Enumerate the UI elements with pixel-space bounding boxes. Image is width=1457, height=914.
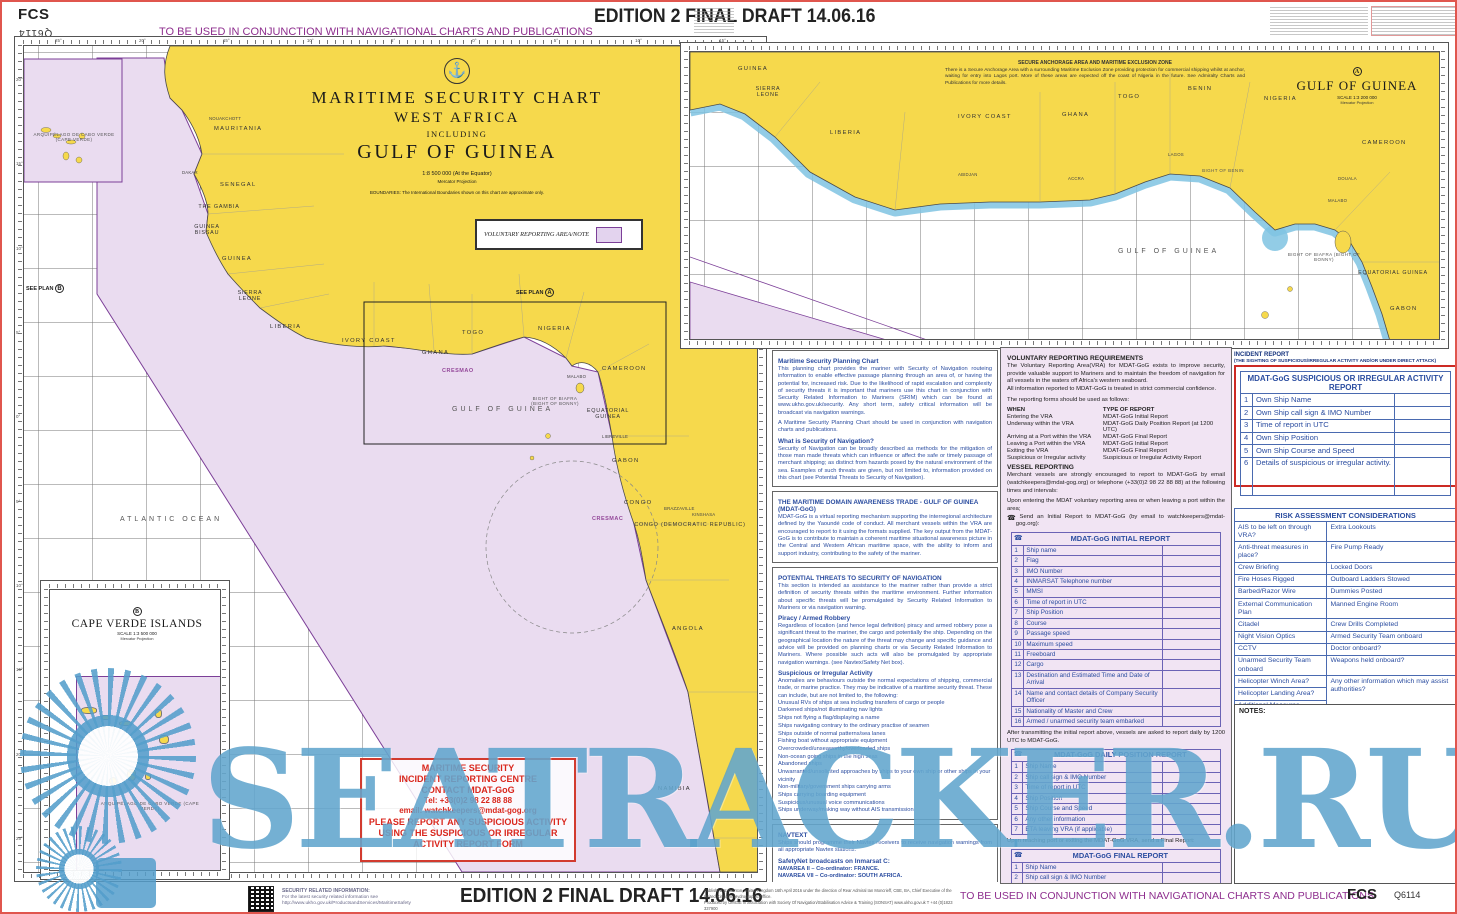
table-cell: Time of report in UTC (1024, 597, 1162, 607)
section-body: A Maritime Security Planning Chart shoul… (778, 420, 992, 435)
table-cell: Entering the VRA (1007, 413, 1103, 420)
section-title: Piracy / Armed Robbery (778, 615, 992, 622)
inset-label-guinea: GUINEA (738, 66, 768, 72)
risk-table: RISK ASSESSMENT CONSIDERATIONS AIS to be… (1234, 508, 1457, 713)
inset-a-badge: A (1353, 67, 1362, 76)
list-item: Unusual RVs of ships at sea including tr… (778, 700, 992, 708)
inset-label-benin: BENIN (1188, 86, 1212, 92)
island (81, 707, 97, 714)
table-row: Exiting the VRAMDAT-GoG Final Report (1007, 447, 1225, 454)
voluntary-reporting-panel: VOLUNTARY REPORTING REQUIREMENTS The Vol… (1000, 347, 1232, 884)
vra-swatch (596, 227, 622, 243)
table-cell: 7 (1012, 825, 1023, 835)
table-cell: Ship Course and Speed (1023, 804, 1162, 814)
map-label-nigeria: NIGERIA (538, 326, 571, 332)
table-cell: Exiting the VRA (1007, 447, 1103, 454)
table-row: 3IMO Number (1012, 566, 1220, 576)
chart-including: INCLUDING (307, 129, 607, 139)
map-label-guinea-bissau: GUINEA BISSAU (184, 224, 230, 236)
plan-a-badge: A (545, 288, 554, 297)
footer-usage-note: TO BE USED IN CONJUNCTION WITH NAVIGATIO… (960, 890, 1374, 902)
vrr-intro: The Voluntary Reporting Area(VRA) for MD… (1007, 363, 1225, 386)
table-row: External Communication PlanManned Engine… (1235, 599, 1457, 619)
table-cell: Night Vision Optics (1235, 631, 1327, 643)
incident-table: MDAT-GoG SUSPICIOUS OR IRREGULAR ACTIVIT… (1240, 371, 1451, 496)
map-label-ghana: GHANA (422, 350, 449, 356)
after-initial: After transmitting the initial report ab… (1007, 730, 1225, 745)
section-body: This section is intended as assistance t… (778, 583, 992, 612)
inset-a-map: A GULF OF GUINEA SCALE 1:3 200 000 Merca… (689, 51, 1440, 340)
table-cell: 1 (1012, 762, 1023, 772)
table-cell: Time of report in UTC (1253, 419, 1395, 432)
table-cell: Ship Position (1023, 793, 1162, 803)
table-cell: MDAT-GoG Initial Report (1103, 413, 1225, 420)
table-cell: 10 (1012, 639, 1024, 649)
chart-logo-fcs: FCS Q6114 (18, 7, 52, 38)
mdat-gog-section: THE MARITIME DOMAIN AWARENESS TRADE - GU… (772, 491, 998, 563)
inset-label-gulf-of-guinea: GULF OF GUINEA (1118, 248, 1219, 255)
risk-assessment-panel: RISK ASSESSMENT CONSIDERATIONS AIS to be… (1234, 508, 1457, 713)
value-cell-empty (1162, 804, 1220, 814)
inset-label-sierra-leone: SIERRA LEONE (746, 86, 790, 98)
value-cell-empty (1395, 419, 1451, 432)
list-item: Unwarranted/unsolicited approaches by sh… (778, 769, 992, 784)
list-item: 5° (16, 330, 23, 335)
map-label-angola: ANGOLA (672, 626, 704, 632)
notes-label: NOTES: (1239, 708, 1452, 715)
table-row: 7ETA leaving VRA (if applicable) (1012, 825, 1220, 835)
inset-label-ivory-coast: IVORY COAST (958, 114, 1012, 120)
section-title: THE MARITIME DOMAIN AWARENESS TRADE - GU… (778, 499, 992, 513)
contact-line1: MARITIME SECURITY (362, 763, 574, 774)
type-header: TYPE OF REPORT (1103, 406, 1225, 413)
table-cell: Course (1024, 618, 1162, 628)
value-cell-empty (1162, 660, 1220, 670)
list-item: 20° (16, 77, 23, 82)
map-label-gabon: GABON (612, 458, 639, 464)
notes-panel: NOTES: (1234, 704, 1457, 884)
list-item: 0° (16, 414, 23, 419)
when-header: WHEN (1007, 406, 1103, 413)
table-cell: 3 (1012, 883, 1023, 884)
list-item: Non-military/government ships carrying a… (778, 784, 992, 792)
legal-microtext (1270, 7, 1368, 35)
table-cell: Ship Position (1024, 608, 1162, 618)
inset-label-equatorial-guinea: EQUATORIAL GUINEA (1358, 270, 1428, 276)
table-cell: 2 (1012, 772, 1023, 782)
see-plan-a-text: SEE PLAN (516, 290, 544, 296)
table-cell: Anti-threat measures in place? (1235, 542, 1327, 562)
island (127, 769, 136, 781)
table-row: 2Ship call sign & IMO Number (1012, 772, 1220, 782)
incident-report-panel: INCIDENT REPORT (THE SIGHTING OF SUSPICI… (1234, 352, 1457, 502)
section-body: MDAT-GoG is a virtual reporting mechanis… (778, 514, 992, 558)
value-cell-empty (1162, 577, 1220, 587)
incident-contact-box: MARITIME SECURITY INCIDENT REPORTING CEN… (360, 758, 576, 862)
publication-line1: Published at Taunton, United Kingdom 16t… (704, 888, 956, 900)
table-cell: 1 (1012, 862, 1023, 872)
island (119, 721, 132, 726)
chart-page: FCS Q6114 TO BE USED IN CONJUNCTION WITH… (0, 0, 1457, 914)
value-cell-empty (1162, 597, 1220, 607)
table-cell: Own Ship Course and Speed (1253, 445, 1395, 458)
latitude-labels: 20°15°10°5°0°5°10°15°20°25° (16, 77, 23, 841)
section-title: Maritime Security Planning Chart (778, 358, 992, 365)
list-item: 10° (307, 38, 314, 45)
list-item: 10° (635, 38, 642, 45)
value-cell-empty (1162, 650, 1220, 660)
phone-icon: ☎ (1007, 514, 1016, 523)
table-cell: Crew Briefing (1235, 562, 1327, 574)
table-cell: AIS to be left on through VRA? (1235, 522, 1327, 542)
table-cell: 8 (1012, 618, 1024, 628)
table-cell: Passage speed (1024, 629, 1162, 639)
list-item: Ships outside of normal patterns/sea lan… (778, 731, 992, 739)
publication-line2: Produced by OMGIE in association with So… (704, 900, 956, 912)
island (159, 735, 169, 744)
table-cell: Flag (1024, 556, 1162, 566)
table-row: 6Time of report in UTC (1012, 597, 1220, 607)
list-item: Ships underway/making way without AIS tr… (778, 807, 992, 815)
risk-title: RISK ASSESSMENT CONSIDERATIONS (1235, 509, 1457, 522)
list-item: 25° (55, 38, 62, 45)
value-cell-empty (1162, 762, 1220, 772)
table-row: 4Ship Position (1012, 793, 1220, 803)
inset-label-liberia: LIBERIA (830, 130, 861, 136)
phone-icon: ☎ (1014, 751, 1023, 759)
header-edition-title: EDITION 2 FINAL DRAFT 14.06.16 (594, 6, 875, 28)
navarea-7: NAVAREA VII – Co-ordinator: SOUTH AFRICA… (778, 873, 992, 880)
table-cell: 2 (1012, 556, 1024, 566)
see-plan-b-note: SEE PLAN B (26, 284, 64, 293)
chart-projection: Mercator Projection (307, 179, 607, 184)
table-cell: Destination and Estimated Time and Date … (1024, 670, 1162, 688)
table-cell: 1 (1241, 394, 1253, 407)
inset-b-badge: B (133, 607, 142, 616)
table-row: 2Ship call sign & IMO Number (1012, 873, 1220, 883)
send-initial: ☎ Send an Initial Report to MDAT-GoG (by… (1007, 514, 1225, 529)
list-item: 5° (554, 38, 558, 45)
chart-scale: 1:8 500 000 (At the Equator) (307, 171, 607, 177)
initial-report-table: ☎MDAT-GoG INITIAL REPORT 1Ship name2Flag… (1011, 532, 1220, 727)
table-cell: Dummies Posted (1327, 586, 1457, 598)
table-row: 11Freeboard (1012, 650, 1220, 660)
incident-subtitle: (THE SIGHTING OF SUSPICIOUS/IRREGULAR AC… (1234, 358, 1457, 363)
table-row: Underway within the VRAMDAT-GoG Daily Po… (1007, 420, 1225, 433)
contact-email: email: watchkeepers@mdat-gog.org (362, 806, 574, 816)
table-row: Night Vision OpticsArmed Security Team o… (1235, 631, 1457, 643)
list-item: Overcrowded/unseaworthy/overloaded ships (778, 746, 992, 754)
vra-legend-box: VOLUNTARY REPORTING AREA/NOTE (475, 219, 643, 250)
map-label-senegal: SENEGAL (220, 182, 257, 188)
table-row: 15Nationality of Master and Crew (1012, 706, 1220, 716)
table-row: 1Ship name (1012, 545, 1220, 555)
island (155, 709, 162, 718)
contact-line8: ACTIVITY REPORT FORM (362, 839, 574, 850)
inset-b-projection: Mercator Projection (58, 637, 216, 641)
table-cell: 12 (1012, 660, 1024, 670)
table-cell: Underway within the VRA (1007, 420, 1103, 433)
threats-section: POTENTIAL THREATS TO SECURITY OF NAVIGAT… (772, 567, 998, 820)
map-label-togo: TOGO (462, 330, 484, 336)
table-cell: Fire Hoses Rigged (1235, 574, 1327, 586)
table-row: Leaving a Port within the VRAMDAT-GoG In… (1007, 440, 1225, 447)
map-label-gambia: THE GAMBIA (194, 204, 244, 210)
value-cell-empty (1162, 587, 1220, 597)
inset-a-projection: Mercator Projection (1282, 101, 1432, 105)
table-row: 4INMARSAT Telephone number (1012, 577, 1220, 587)
table-row: 3Time of report in UTC (1241, 419, 1451, 432)
vrr-intro2: All information reported to MDAT-GoG is … (1007, 386, 1225, 394)
value-cell-empty (1162, 793, 1220, 803)
footer-publication-note: Published at Taunton, United Kingdom 16t… (704, 888, 956, 913)
table-cell: Manned Engine Room (1327, 599, 1457, 619)
contact-line3: CONTACT MDAT-GoG (362, 785, 574, 796)
table-row: 1Ship Name (1012, 862, 1220, 872)
table-row: 8Course (1012, 618, 1220, 628)
table-row: Entering the VRAMDAT-GoG Initial Report (1007, 413, 1225, 420)
list-item: 5° (391, 38, 395, 45)
value-cell-empty (1162, 639, 1220, 649)
inset-b-title: CAPE VERDE ISLANDS (58, 618, 216, 630)
table-cell: 13 (1012, 670, 1024, 688)
list-item: Darkened ships/not illuminating nav ligh… (778, 707, 992, 715)
vra-legend-label: VOLUNTARY REPORTING AREA/NOTE (484, 231, 589, 238)
table-cell: External Communication Plan (1235, 599, 1327, 619)
inset-label-douala: DOUALA (1338, 176, 1357, 181)
table-cell: MDAT-GoG Final Report (1103, 433, 1225, 440)
table-cell: Own Ship Name (1253, 394, 1395, 407)
map-label-dakar: DAKAR (182, 170, 198, 175)
table-cell: 2 (1012, 873, 1023, 883)
value-cell-empty (1162, 873, 1220, 883)
table-cell: IMO Number (1024, 566, 1162, 576)
table-row: 1Ship Name (1012, 762, 1220, 772)
table-row: 2Flag (1012, 556, 1220, 566)
value-cell-empty (1162, 566, 1220, 576)
map-label-libreville: LIBREVILLE (602, 434, 628, 439)
inset-label-bight-of-biafra: BIGHT OF BIAFRA (BIGHT OF BONNY) (1286, 252, 1362, 262)
forms-intro: The reporting forms should be used as fo… (1007, 397, 1225, 405)
map-label-congo-dr: CONGO (DEMOCRATIC REPUBLIC) (630, 522, 750, 528)
list-item: Ships carrying boarding equipment (778, 792, 992, 800)
value-cell-empty (1162, 670, 1220, 688)
list-item: Ships navigating contrary to the ordinar… (778, 723, 992, 731)
value-cell-empty (1395, 394, 1451, 407)
value-cell-empty (1162, 783, 1220, 793)
list-item: Suspicious/unusual voice communications (778, 800, 992, 808)
table-row: AIS to be left on through VRA?Extra Look… (1235, 522, 1457, 542)
map-label-guinea: GUINEA (222, 256, 252, 262)
map-label-mauritania: MAURITANIA (214, 126, 262, 132)
table-cell: Ship Name (1023, 862, 1162, 872)
value-cell-empty (1395, 445, 1451, 458)
value-cell-empty (1162, 556, 1220, 566)
map-label-cameroon: CAMEROON (602, 366, 647, 372)
table-cell: Own Ship Position (1253, 432, 1395, 445)
incident-table-title: MDAT-GoG SUSPICIOUS OR IRREGULAR ACTIVIT… (1241, 372, 1451, 394)
table-cell: Barbed/Razor Wire (1235, 586, 1327, 598)
inset-b-scale: SCALE 1:3 500 000 (58, 631, 216, 636)
table-cell: Time of report in UTC (1023, 783, 1162, 793)
value-cell-empty (1162, 883, 1220, 884)
section-body: Anomalies are behaviours outside the nor… (778, 678, 992, 700)
table-cell: Cargo (1024, 660, 1162, 670)
inset-label-ghana: GHANA (1062, 112, 1089, 118)
value-cell-empty (1162, 629, 1220, 639)
table-row: Arriving at a Port within the VRAMDAT-Go… (1007, 433, 1225, 440)
value-cell-empty (1162, 814, 1220, 824)
map-label-cresmao: CRESMAO (442, 368, 474, 374)
table-row: Fire Hoses RiggedOutboard Ladders Stowed (1235, 574, 1457, 586)
table-cell: Armed Security Team onboard (1327, 631, 1457, 643)
table-cell: MDAT-GoG Initial Report (1103, 440, 1225, 447)
table-cell: Armed / unarmed security team embarked (1024, 716, 1162, 726)
list-item: 25° (16, 836, 23, 841)
longitude-labels: 25°20°15°10°5°0°5°10°15° (55, 38, 726, 45)
table-row: Crew BriefingLocked Doors (1235, 562, 1457, 574)
qr-code (248, 886, 274, 912)
table-cell: 7 (1012, 608, 1024, 618)
navtex-section: NAVTEXT Ships should programme their Nav… (772, 824, 998, 882)
table-cell: 3 (1012, 566, 1024, 576)
table-cell: Doctor onboard? (1327, 643, 1457, 655)
table-row: 1Own Ship Name (1241, 394, 1451, 407)
list-item: 10° (16, 583, 23, 588)
table-cell: 14 (1012, 688, 1024, 706)
legal-microtext (694, 8, 734, 34)
secure-anchorage-body: There is a Secure Anchorage Area with a … (945, 68, 1245, 87)
table-row: 6Details of suspicious or irregular acti… (1241, 457, 1451, 495)
list-item: 20° (139, 38, 146, 45)
table-row: 4Own Ship Position (1241, 432, 1451, 445)
list-item: 15° (16, 667, 23, 672)
table-cell: Ship call sign & IMO Number (1023, 772, 1162, 782)
table-cell: Ship name (1024, 545, 1162, 555)
table-cell: Time of report in UTC (1023, 883, 1162, 884)
table-cell: MDAT-GoG Daily Position Report (at 1200 … (1103, 420, 1225, 433)
list-item: 15° (16, 161, 23, 166)
list-item: Ships not flying a flag/displaying a nam… (778, 715, 992, 723)
info-panel: Maritime Security Planning Chart This pl… (772, 350, 998, 882)
map-label-cresmac: CRESMAC (592, 516, 623, 522)
table-cell: 6 (1241, 457, 1253, 495)
map-label-ivory-coast: IVORY COAST (342, 338, 396, 344)
table-cell: Arriving at a Port within the VRA (1007, 433, 1103, 440)
value-cell-empty (1162, 608, 1220, 618)
inset-b-title-block: B CAPE VERDE ISLANDS SCALE 1:3 500 000 M… (58, 600, 216, 641)
section-title: POTENTIAL THREATS TO SECURITY OF NAVIGAT… (778, 575, 992, 582)
inset-b-islands-label: ARQUIPÉLAGO DE CABO VERDE (CAPE VERDE) (95, 801, 205, 811)
list-item: Abandoned ships (778, 761, 992, 769)
section-body: Security of Navigation can be broadly de… (778, 446, 992, 482)
table-row: 14Name and contact details of Company Se… (1012, 688, 1220, 706)
plan-b-badge: B (55, 284, 64, 293)
phone-icon: ☎ (1014, 852, 1023, 860)
final-report-title: MDAT-GoG FINAL REPORT (1073, 851, 1168, 860)
final-report-table: ☎MDAT-GoG FINAL REPORT 1Ship Name2Ship c… (1011, 849, 1220, 884)
table-cell: Helicopter Landing Area? (1235, 688, 1327, 700)
when-type-table: WHENTYPE OF REPORT Entering the VRAMDAT-… (1007, 406, 1225, 461)
secure-anchorage-note: SECURE ANCHORAGE AREA AND MARITIME EXCLU… (945, 60, 1245, 87)
vessel-reporting-body: Merchant vessels are strongly encouraged… (1007, 472, 1225, 495)
table-cell: Citadel (1235, 619, 1327, 631)
map-label-bight-of-biafra: BIGHT OF BIAFRA (BIGHT OF BONNY) (524, 396, 586, 406)
suspicious-activity-list: Unusual RVs of ships at sea including tr… (778, 700, 992, 815)
chart-area-title: GULF OF GUINEA (307, 141, 607, 164)
table-cell: 6 (1012, 814, 1023, 824)
table-cell: 6 (1012, 597, 1024, 607)
table-cell: Outboard Ladders Stowed (1327, 574, 1457, 586)
upon-entering: Upon entering the MDAT voluntary reporti… (1007, 498, 1225, 513)
section-body: Regardless of location (and hence legal … (778, 623, 992, 667)
value-cell-empty (1395, 407, 1451, 420)
security-info-url: http://www.ukho.gov.uk/ProductsandServic… (282, 901, 454, 907)
footer-fcs-label: FCS (1347, 886, 1377, 903)
daily-report-title: MDAT-GoG DAILY POSITION REPORT (1054, 750, 1187, 759)
chart-subtitle: WEST AFRICA (307, 110, 607, 127)
map-label-congo: CONGO (624, 500, 652, 506)
table-cell: 4 (1241, 432, 1253, 445)
admiralty-crest-icon: ⚓ (444, 58, 470, 84)
table-cell: Name and contact details of Company Secu… (1024, 688, 1162, 706)
vrr-title: VOLUNTARY REPORTING REQUIREMENTS (1007, 355, 1225, 362)
table-cell: ETA leaving VRA (if applicable) (1023, 825, 1162, 835)
map-label-namibia: NAMIBIA (658, 786, 691, 792)
table-cell: 4 (1012, 793, 1023, 803)
inset-a-title-block: A GULF OF GUINEA SCALE 1:3 200 000 Merca… (1282, 60, 1432, 105)
map-label-liberia: LIBERIA (270, 324, 301, 330)
section-body: This planning chart provides the mariner… (778, 366, 992, 417)
value-cell-empty (1162, 545, 1220, 555)
see-plan-b-text: SEE PLAN (26, 286, 54, 292)
table-cell: 5 (1012, 804, 1023, 814)
value-cell-empty (1162, 825, 1220, 835)
table-row: 5MMSI (1012, 587, 1220, 597)
map-label-sierra-leone: SIERRA LEONE (228, 290, 272, 302)
value-cell-empty (1162, 862, 1220, 872)
map-label-equatorial-guinea: EQUATORIAL GUINEA (580, 408, 636, 420)
table-row: 10Maximum speed (1012, 639, 1220, 649)
phone-icon: ☎ (1014, 535, 1023, 543)
inset-a-frame: A GULF OF GUINEA SCALE 1:3 200 000 Merca… (680, 42, 1449, 349)
section-title: Suspicious or Irregular Activity (778, 670, 992, 677)
island (101, 715, 110, 720)
contact-line7: USING THE SUSPICIOUS OR IRREGULAR (362, 828, 574, 839)
table-row: 16Armed / unarmed security team embarked (1012, 716, 1220, 726)
table-row: 2Own Ship call sign & IMO Number (1241, 407, 1451, 420)
inset-label-abidjan: ABIDJAN (958, 172, 978, 177)
table-cell: 3 (1241, 419, 1253, 432)
inset-label-cameroon: CAMEROON (1362, 140, 1407, 146)
table-cell: Details of suspicious or irregular activ… (1253, 457, 1395, 495)
inset-b-map: B CAPE VERDE ISLANDS SCALE 1:3 500 000 M… (49, 589, 221, 871)
upon-reaching: Upon reaching port or exiting the MDAT-G… (1007, 838, 1225, 846)
table-row: Suspicious or Irregular activitySuspicio… (1007, 454, 1225, 461)
map-label-brazzaville: BRAZZAVILLE (664, 506, 695, 511)
table-cell: Suspicious or Irregular Activity Report (1103, 454, 1225, 461)
table-row: 7Ship Position (1012, 608, 1220, 618)
table-row: 3Time of report in UTC (1012, 883, 1220, 884)
footer-security-info: SECURITY RELATED INFORMATION: For the la… (282, 888, 454, 907)
island (109, 777, 117, 785)
table-cell: Ship call sign & IMO Number (1023, 873, 1162, 883)
inset-label-nigeria: NIGERIA (1264, 96, 1297, 102)
table-cell: 5 (1012, 587, 1024, 597)
list-item: 20° (16, 752, 23, 757)
send-initial-text: Send an Initial Report to MDAT-GoG (by e… (1016, 514, 1225, 528)
table-cell: Extra Lookouts (1327, 522, 1457, 542)
